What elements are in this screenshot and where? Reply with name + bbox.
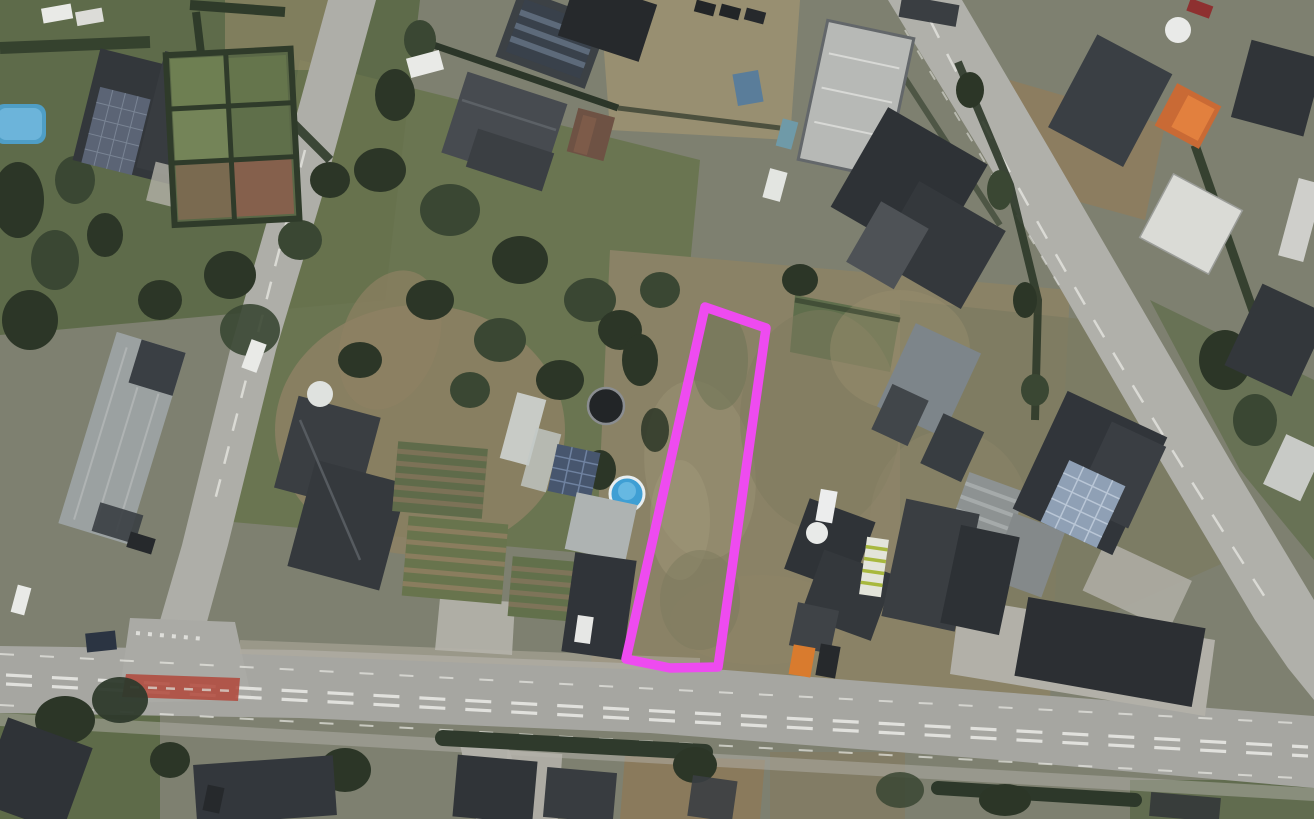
dark-round-pool — [588, 388, 624, 424]
swimming-pool-top-left — [0, 104, 46, 144]
satellite-map-canvas[interactable] — [0, 0, 1314, 819]
dark-car — [85, 630, 117, 652]
garden-plots-top-left — [166, 49, 300, 225]
blue-tarp — [732, 70, 763, 106]
aerial-image — [0, 0, 1314, 819]
white-tank — [806, 522, 828, 544]
white-dome — [307, 381, 333, 407]
satellite-dish — [1165, 17, 1191, 43]
